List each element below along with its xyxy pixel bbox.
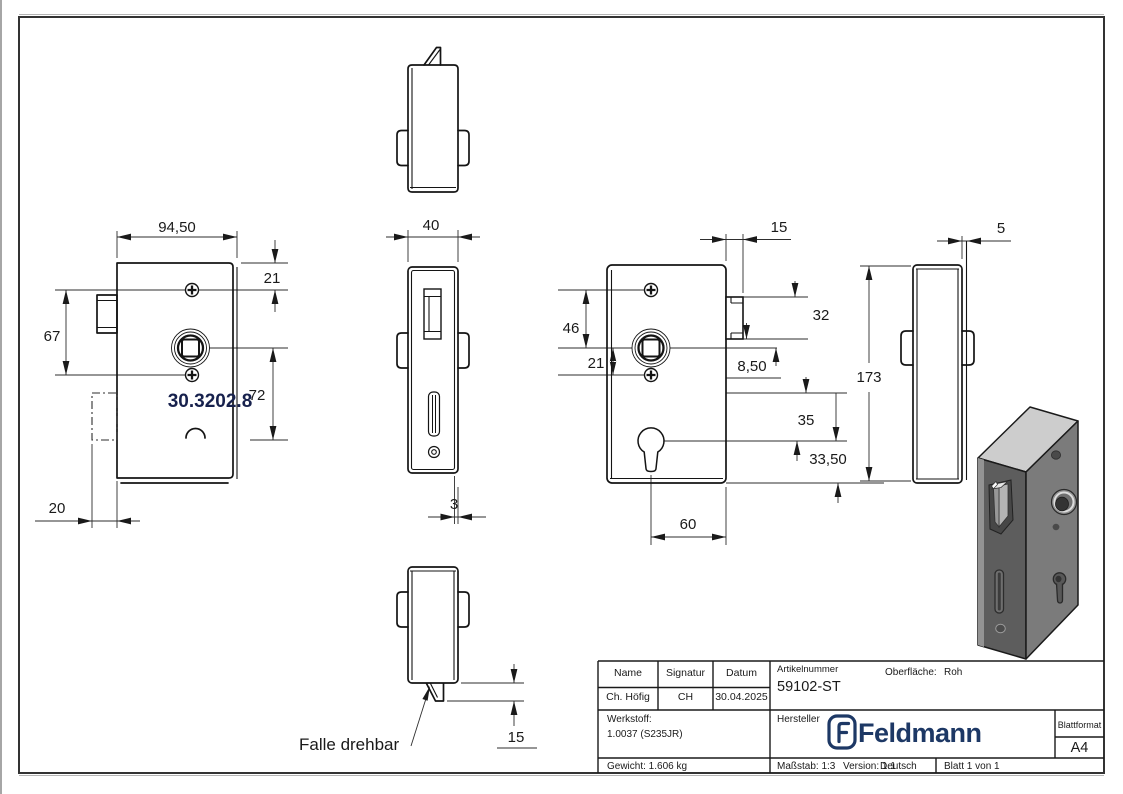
latch-detail-lines bbox=[97, 301, 117, 328]
dim-faceplate-thickness: 3 bbox=[450, 496, 458, 513]
iso-faceplate-edge-highlight bbox=[978, 458, 984, 647]
hidden-latch-outline bbox=[92, 393, 117, 440]
dim-keyhole-x: 60 bbox=[680, 516, 697, 533]
note-falle-drehbar: Falle drehbar bbox=[299, 735, 400, 754]
dim-screw-to-spindle: 46 bbox=[563, 320, 580, 337]
dim-faceplate-width: 40 bbox=[423, 217, 440, 234]
drawing-date: 30.04.2025 bbox=[713, 692, 770, 704]
dim-latch-depth: 20 bbox=[49, 500, 66, 517]
iso-screw-dimple-bottom bbox=[1053, 524, 1060, 530]
article-number: 59102-ST bbox=[777, 680, 841, 696]
side-tab-right bbox=[962, 331, 974, 365]
scale-value: Maßstab: 1:3 bbox=[777, 761, 835, 772]
material-value: 1.0037 (S235JR) bbox=[607, 729, 683, 740]
signatur-column-header: Signatur bbox=[658, 668, 713, 680]
hersteller-label: Hersteller bbox=[777, 714, 820, 725]
spindle-hole bbox=[172, 329, 210, 367]
side-tab-left bbox=[901, 331, 913, 365]
screw-hole-top bbox=[186, 284, 199, 297]
iso-screw-dimple-top bbox=[1051, 451, 1060, 459]
artikelnummer-label: Artikelnummer bbox=[777, 665, 838, 675]
back-view: 94,50 21 67 72 20 30.3202.8 bbox=[35, 219, 288, 528]
side-case-outline bbox=[913, 265, 962, 483]
werkstoff-label: Werkstoff: bbox=[607, 714, 652, 725]
blattformat-label: Blattformat bbox=[1055, 721, 1104, 731]
top-view-seams bbox=[410, 68, 456, 189]
surface-value: Roh bbox=[944, 667, 962, 678]
dim-latch-protrusion: 15 bbox=[771, 219, 788, 236]
iso-faceplate-screw bbox=[996, 624, 1006, 632]
bottom-view-body bbox=[408, 567, 458, 683]
faceplate-tab-right bbox=[458, 333, 469, 368]
top-view-tab-right bbox=[458, 131, 469, 166]
surface-label: Oberfläche: bbox=[885, 667, 937, 678]
side-dim-arrows bbox=[866, 238, 981, 481]
faceplate-dim-lines bbox=[386, 230, 486, 524]
dim-top-to-screw: 21 bbox=[264, 270, 281, 287]
front-dim-arrows bbox=[583, 236, 842, 540]
front-screw-top bbox=[645, 284, 658, 297]
dim-latch-to-spindle: 8,50 bbox=[737, 358, 766, 375]
dim-keyhole-offset: 35 bbox=[798, 412, 815, 429]
weight-value: Gewicht: 1.606 kg bbox=[607, 761, 687, 772]
feldmann-logo-icon bbox=[829, 716, 855, 748]
hidden-keyhole-arc bbox=[186, 429, 205, 439]
isometric-view bbox=[978, 407, 1078, 659]
faceplate-dim-arrows bbox=[394, 234, 472, 521]
bottom-view: 15 Falle drehbar bbox=[299, 567, 537, 754]
front-spindle-hole bbox=[632, 329, 670, 367]
dim-width-back: 94,50 bbox=[158, 219, 196, 236]
front-view: 15 46 21 32 8,50 35 33,50 60 bbox=[558, 219, 884, 545]
dim-keyhole-to-bottom: 33,50 bbox=[809, 451, 847, 468]
bottom-view-latch-inner bbox=[431, 684, 438, 698]
side-view: 5 173 bbox=[856, 220, 1011, 483]
dim-screw-span: 67 bbox=[44, 328, 61, 345]
dim-latch-height: 32 bbox=[813, 307, 830, 324]
front-case-seams bbox=[610, 270, 723, 479]
bottom-dim-arrows bbox=[422, 669, 517, 715]
brand-name: Feldmann bbox=[858, 720, 982, 747]
screw-hole-bottom bbox=[186, 369, 199, 382]
datum-column-header: Datum bbox=[713, 668, 770, 680]
sheet-count: Blatt 1 von 1 bbox=[944, 761, 1000, 772]
dim-latch-protrusion-bottom: 15 bbox=[508, 729, 525, 746]
latch-opening bbox=[424, 289, 441, 339]
iso-spindle-boss bbox=[1052, 490, 1077, 515]
front-latch bbox=[726, 297, 743, 339]
sheet-format: A4 bbox=[1055, 741, 1104, 757]
top-view bbox=[397, 48, 469, 193]
dim-faceplate-thickness-side: 5 bbox=[997, 220, 1005, 237]
dim-total-height: 173 bbox=[856, 369, 881, 386]
front-case-outline bbox=[607, 265, 726, 483]
top-view-latch bbox=[424, 48, 441, 66]
top-view-body bbox=[408, 65, 458, 192]
bottom-view-seams bbox=[410, 571, 456, 680]
key-slot bbox=[429, 392, 440, 436]
bottom-tab-left bbox=[397, 592, 408, 627]
faceplate-screw-hole bbox=[429, 447, 440, 458]
iso-key-slot bbox=[995, 570, 1004, 613]
euro-keyhole bbox=[638, 428, 664, 472]
bottom-tab-right bbox=[458, 592, 469, 627]
language-value: Deutsch bbox=[880, 761, 917, 772]
front-screw-bottom bbox=[645, 369, 658, 382]
lock-case-outline bbox=[117, 263, 233, 478]
name-column-header: Name bbox=[598, 668, 658, 680]
part-number: 30.3202.8 bbox=[168, 391, 253, 412]
top-view-tab-left bbox=[397, 131, 408, 166]
back-dim-arrows bbox=[63, 234, 279, 525]
author-name: Ch. Höfig bbox=[598, 692, 658, 704]
faceplate-tab-left bbox=[397, 333, 408, 368]
sheet-frame bbox=[1, 0, 1104, 794]
faceplate-view: 40 3 bbox=[386, 217, 486, 524]
drawing-sheet: 94,50 21 67 72 20 30.3202.8 bbox=[0, 0, 1123, 794]
side-case-seams bbox=[916, 269, 959, 479]
side-dim-lines bbox=[860, 236, 1011, 481]
author-initials: CH bbox=[658, 692, 713, 704]
dim-spindle-to-screw: 21 bbox=[588, 355, 605, 372]
